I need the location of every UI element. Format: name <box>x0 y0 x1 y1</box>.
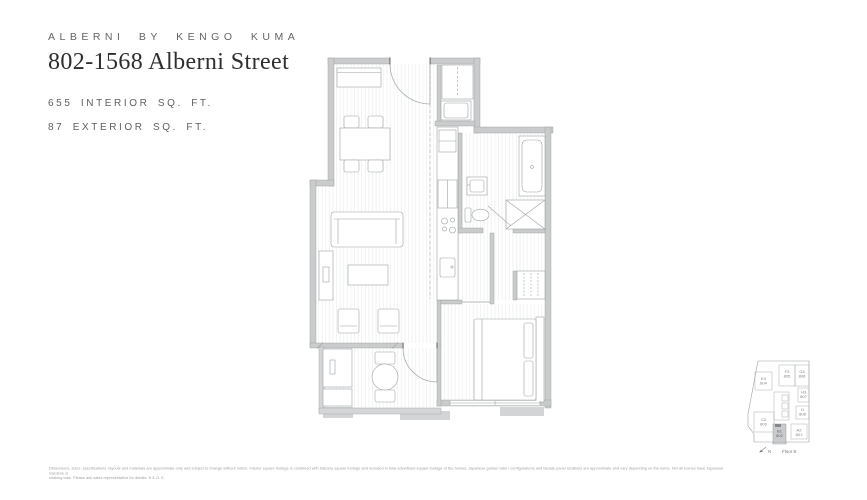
svg-text:808: 808 <box>799 412 806 417</box>
kitchen <box>437 127 458 300</box>
dining-chair <box>344 160 359 172</box>
svg-text:804: 804 <box>760 381 767 386</box>
north-arrow-icon: N <box>759 447 771 454</box>
disclaimer-line-2: soaking tubs. Please ask sales represent… <box>49 476 729 481</box>
pillow <box>524 361 533 396</box>
balcony-planter <box>323 349 352 406</box>
pillow <box>524 323 533 358</box>
entry-closet <box>442 65 473 99</box>
disclaimer-line-1: Dimensions, sizes, specifications, layou… <box>49 466 729 476</box>
dining-table <box>340 128 390 160</box>
armchair <box>378 309 399 333</box>
svg-text:802: 802 <box>776 433 783 438</box>
brand-name: ALBERNI BY KENGO KUMA <box>48 31 348 43</box>
svg-text:807: 807 <box>800 394 807 399</box>
north-label: N <box>768 449 771 454</box>
shower <box>506 200 545 229</box>
bedroom-closet <box>517 271 545 299</box>
svg-text:805: 805 <box>784 374 791 379</box>
svg-text:801: 801 <box>796 432 803 437</box>
dining-chair <box>344 116 359 128</box>
floor-label: Floor 8 <box>782 449 797 454</box>
tv-console <box>319 251 333 300</box>
toilet <box>465 208 489 222</box>
floorplan-sheet: { "header": { "brand": "ALBERNI BY KENGO… <box>0 0 867 500</box>
bistro-set <box>372 352 398 402</box>
disclaimer: Dimensions, sizes, specifications, layou… <box>49 466 729 480</box>
dining-chair <box>368 116 383 128</box>
bedroom-window <box>450 401 540 405</box>
dining-chair <box>368 160 383 172</box>
coffee-table <box>348 265 388 285</box>
bathtub <box>519 136 545 196</box>
armchair <box>338 309 359 333</box>
kitchen-sink <box>440 258 455 277</box>
svg-text:803: 803 <box>760 422 767 427</box>
window-bench <box>337 68 381 87</box>
bathroom-vanity <box>467 177 487 195</box>
washer-dryer <box>441 101 471 120</box>
key-plan: E4 804 F3 805 G4 806 H3 807 I1 808 C2 80… <box>746 358 818 458</box>
sofa <box>331 212 403 247</box>
svg-text:806: 806 <box>799 374 806 379</box>
bed <box>474 317 544 402</box>
floor-plan-drawing <box>300 55 562 427</box>
